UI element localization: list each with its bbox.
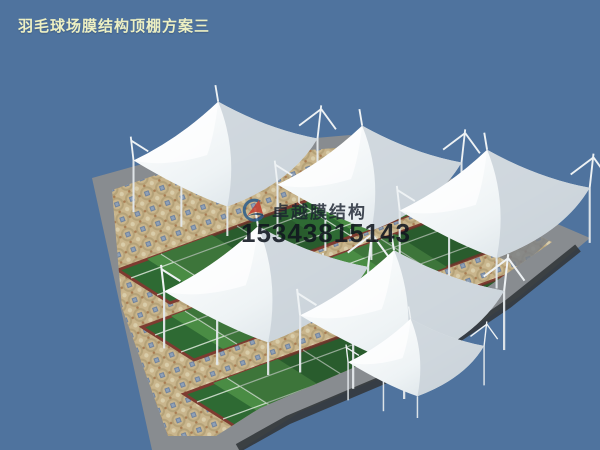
rendering-viewport: 羽毛球场膜结构顶棚方案三 卓越膜结构 15343815143 [0, 0, 600, 450]
page-title: 羽毛球场膜结构顶棚方案三 [18, 15, 210, 36]
watermark-phone: 15343815143 [241, 218, 411, 249]
